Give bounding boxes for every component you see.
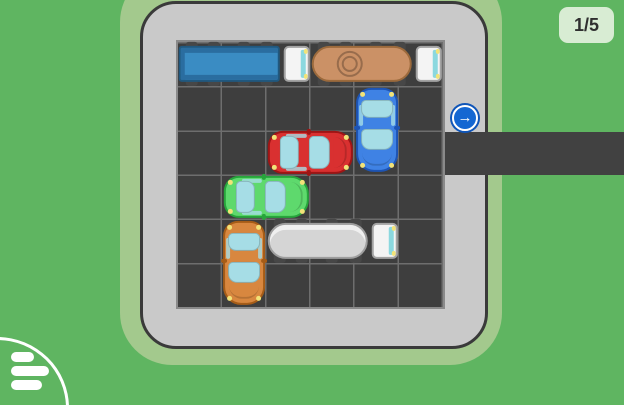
- truck-headlight: [304, 74, 308, 79]
- car-headlight: [256, 225, 261, 230]
- vehicle-blue-car[interactable]: [355, 86, 399, 174]
- car-mirror: [394, 126, 400, 130]
- truck-glyph-blue-truck: [179, 46, 310, 82]
- arrow-right-glyph: →: [458, 110, 473, 125]
- car-headlight: [227, 225, 232, 230]
- truck-headlight: [392, 226, 396, 231]
- car-hood-line: [362, 153, 392, 166]
- hamburger-menu-icon: [11, 352, 34, 362]
- car-hood-line: [229, 286, 259, 299]
- car-body: [268, 131, 352, 173]
- tank-cap: [337, 51, 363, 77]
- vehicle-blue-truck[interactable]: [178, 42, 311, 86]
- tanker-tank: [312, 46, 412, 82]
- level-indicator-text: 1/5: [574, 15, 599, 36]
- vehicle-red-car[interactable]: [266, 130, 354, 174]
- hamburger-menu-bar: [11, 380, 42, 390]
- vehicles-layer: [0, 0, 624, 405]
- car-hood-line: [333, 137, 346, 167]
- truck-glyph-white-tanker: [267, 223, 398, 259]
- car-headlight: [228, 209, 233, 214]
- car-rear-window: [361, 100, 393, 119]
- car-headlight: [389, 163, 394, 168]
- truck-cab: [416, 46, 442, 82]
- truck-cab: [283, 46, 309, 82]
- truck-trailer: [179, 46, 279, 82]
- truck-headlight: [304, 49, 308, 54]
- tank-cap-ring: [342, 56, 358, 72]
- car-headlight: [360, 163, 365, 168]
- exit-arrow-icon: →: [452, 105, 478, 131]
- level-indicator: 1/5: [559, 7, 614, 43]
- car-windshield: [228, 261, 260, 282]
- truck-glyph-tan-tanker: [312, 46, 443, 82]
- car-headlight: [344, 164, 349, 169]
- vehicle-green-car[interactable]: [222, 175, 310, 219]
- car-headlight: [227, 296, 232, 301]
- car-headlight: [272, 164, 277, 169]
- car-glyph-red-car: [268, 131, 352, 173]
- car-rear-window: [228, 232, 260, 251]
- car-headlight: [228, 180, 233, 185]
- vehicle-orange-car[interactable]: [222, 219, 266, 307]
- car-headlight: [360, 92, 365, 97]
- car-body: [223, 221, 265, 305]
- car-headlight: [272, 135, 277, 140]
- car-glyph-orange-car: [223, 221, 265, 305]
- car-hood-line: [289, 182, 302, 212]
- car-mirror: [221, 259, 227, 263]
- car-headlight: [344, 135, 349, 140]
- car-windshield: [309, 136, 330, 168]
- car-rear-window: [236, 181, 255, 213]
- game-stage: → 1/5: [0, 0, 624, 405]
- tanker-tank: [267, 223, 367, 259]
- vehicle-tan-tanker[interactable]: [311, 42, 444, 86]
- car-windshield: [361, 129, 393, 150]
- car-headlight: [299, 209, 304, 214]
- hamburger-menu-bar: [11, 366, 49, 376]
- vehicle-white-tanker[interactable]: [266, 219, 399, 263]
- car-body: [356, 88, 398, 172]
- car-glyph-blue-car: [356, 88, 398, 172]
- car-mirror: [306, 129, 310, 135]
- truck-headlight: [392, 251, 396, 256]
- car-mirror: [262, 174, 266, 180]
- truck-headlight: [436, 74, 440, 79]
- car-rear-window: [280, 136, 299, 168]
- car-headlight: [299, 180, 304, 185]
- truck-cab: [372, 223, 398, 259]
- car-headlight: [389, 92, 394, 97]
- car-body: [224, 176, 308, 218]
- car-glyph-green-car: [224, 176, 308, 218]
- car-windshield: [265, 181, 286, 213]
- truck-headlight: [436, 49, 440, 54]
- car-headlight: [256, 296, 261, 301]
